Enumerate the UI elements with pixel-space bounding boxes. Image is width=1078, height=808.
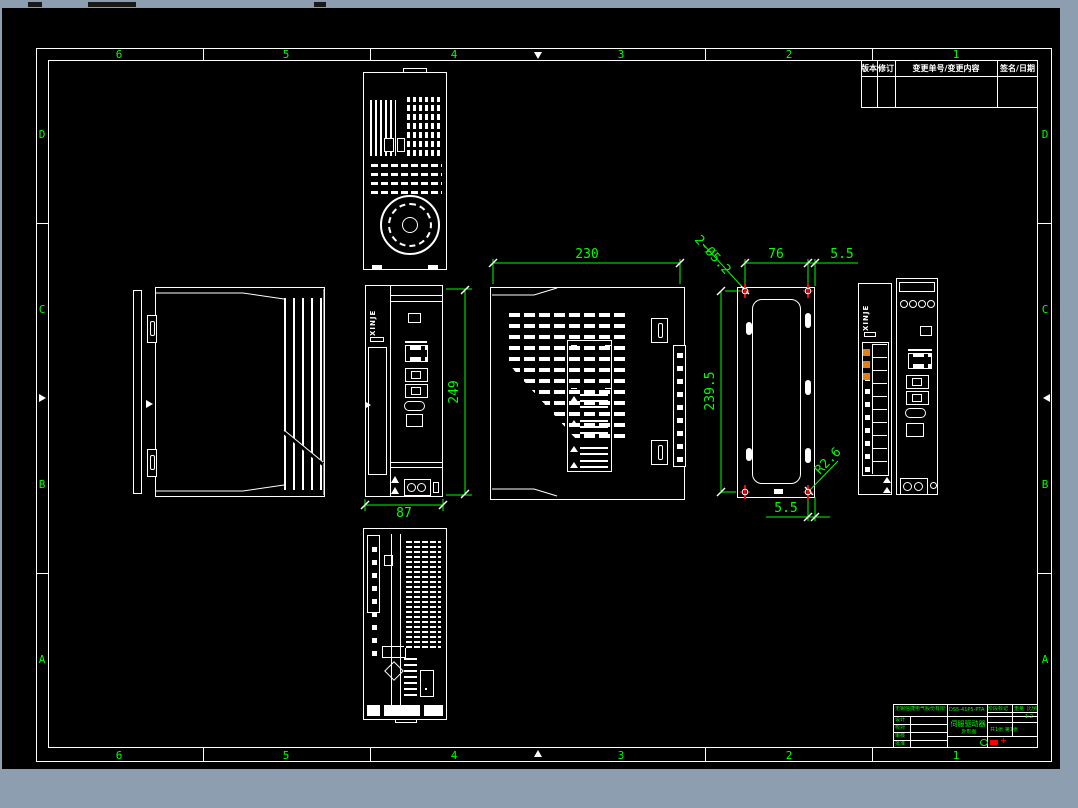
title-block-drawing-name: 外形图 — [954, 729, 984, 736]
dim-width-76: 76 — [768, 247, 784, 262]
dim-height-249: 249 — [447, 380, 462, 403]
title-block-line — [987, 736, 1038, 737]
title-block-row-review: 审核 — [895, 733, 909, 740]
title-block-weight-label: 重量 — [1014, 706, 1025, 713]
title-block-line — [893, 716, 1038, 717]
dim-fillet-callout: R2.6 — [812, 445, 845, 478]
projection-symbol-cross: + — [1000, 737, 1008, 745]
title-block-row-check: 校对 — [895, 725, 909, 732]
title-block-product: 伺服驱动器 — [950, 720, 986, 728]
title-block-doc-no: DS5-41P5-PTA — [949, 707, 986, 714]
projection-symbol-circle — [980, 739, 988, 746]
title-block-line — [947, 704, 948, 748]
title-block-scale-value: 1:2 — [1025, 714, 1038, 721]
dim-hole-callout: 2-Ø5.2 — [691, 233, 734, 278]
title-block-row-design: 设计 — [895, 717, 909, 724]
title-block-sheet-info: 共1张 第1张 — [990, 727, 1036, 734]
dim-width-230: 230 — [575, 247, 598, 262]
dim-width-87: 87 — [396, 506, 412, 521]
dim-offset-top-5-5: 5.5 — [830, 247, 853, 262]
dimension-overlay: 230 76 5.5 239.5 5.5 249 87 2-Ø5.2 R2.6 — [0, 0, 1078, 808]
title-block-row-approve: 批准 — [895, 741, 909, 748]
dim-height-239-5: 239.5 — [703, 371, 718, 410]
dim-offset-bottom-5-5: 5.5 — [774, 501, 797, 516]
projection-symbol-red — [990, 740, 998, 745]
title-block-company: 无锡信捷电气股份有限公司 — [895, 706, 946, 713]
title-block-scale-label: 比例 — [1027, 706, 1038, 713]
title-block-line — [947, 736, 987, 737]
title-block-stage-label: 阶段标记 — [988, 706, 1011, 713]
cad-viewer: 6 5 4 3 2 1 6 5 4 3 2 1 D C B A D C B A … — [0, 0, 1078, 808]
